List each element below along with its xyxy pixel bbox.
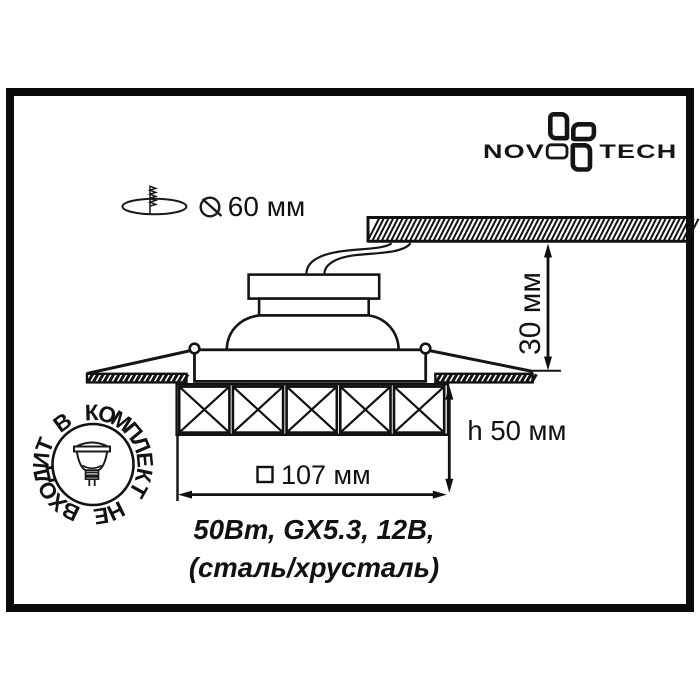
svg-text:h 50 мм: h 50 мм <box>467 415 566 446</box>
svg-text:107 мм: 107 мм <box>281 460 371 490</box>
svg-text:TECH: TECH <box>599 141 677 162</box>
svg-text:(сталь/хрусталь): (сталь/хрусталь) <box>189 552 439 583</box>
svg-text:50Вт, GX5.3, 12В,: 50Вт, GX5.3, 12В, <box>193 514 434 545</box>
svg-text:NOV: NOV <box>483 141 545 162</box>
svg-text:60 мм: 60 мм <box>228 191 305 222</box>
svg-text:30 мм: 30 мм <box>514 272 547 355</box>
